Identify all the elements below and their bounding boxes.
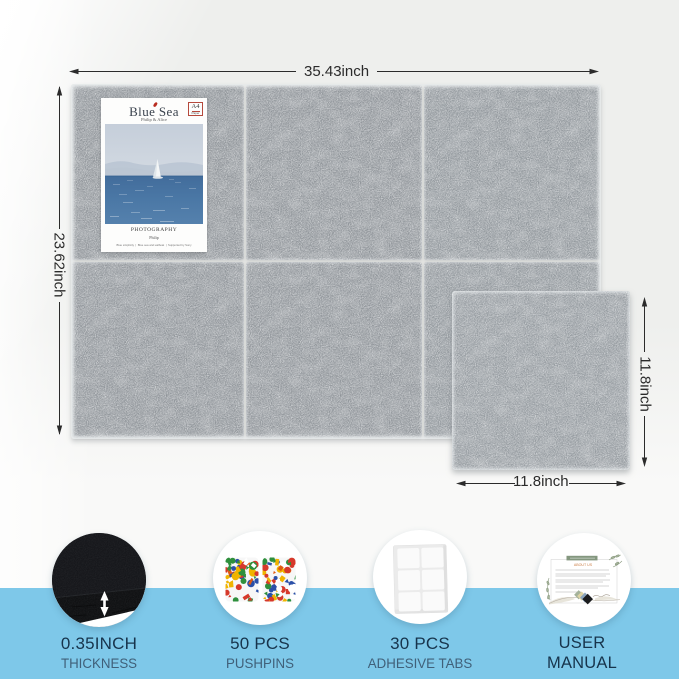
svg-text:ABOUT US: ABOUT US — [574, 563, 593, 567]
